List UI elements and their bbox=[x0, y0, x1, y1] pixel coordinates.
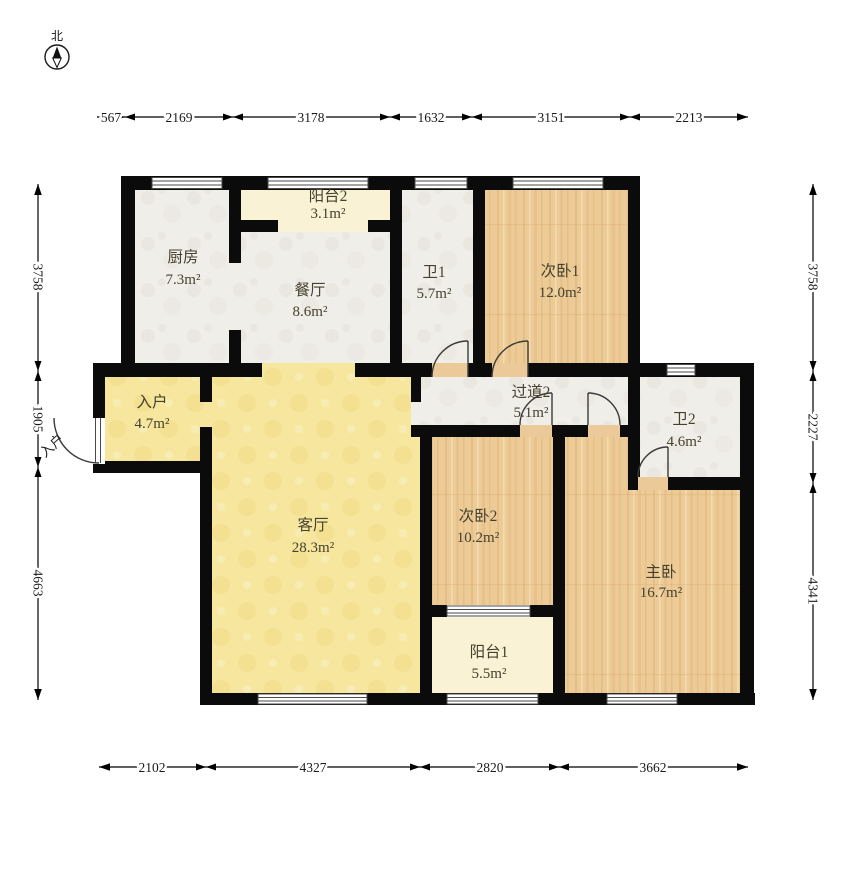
entry-door: 入户 bbox=[36, 418, 105, 464]
passage-entry-living bbox=[200, 402, 212, 427]
dim-top-4: 3151 bbox=[538, 110, 565, 125]
label-kitchen-name: 厨房 bbox=[167, 248, 198, 266]
passage-living-hallway bbox=[411, 402, 432, 425]
compass: 北 bbox=[45, 29, 69, 69]
label-bath2-name: 卫2 bbox=[672, 411, 695, 428]
label-bedroom1-area: 12.0m² bbox=[539, 285, 582, 301]
label-living-area: 28.3m² bbox=[292, 540, 335, 556]
label-entry-name: 入户 bbox=[136, 393, 167, 411]
label-hallway2-name: 过道2 bbox=[512, 383, 551, 401]
window-bedroom1 bbox=[513, 178, 603, 189]
window-balcony1 bbox=[447, 694, 538, 704]
window-bath2 bbox=[667, 365, 695, 376]
label-bath1-area: 5.7m² bbox=[417, 286, 452, 302]
label-master-area: 16.7m² bbox=[640, 585, 683, 601]
dim-bottom-1: 4327 bbox=[300, 760, 327, 775]
dim-top-3: 1632 bbox=[418, 110, 445, 125]
compass-north-label: 北 bbox=[51, 29, 63, 43]
floor-plan-page: 入户 厨房 7.3m² 阳台2 3.1m² 餐厅 8.6m² 卫1 5.7m² … bbox=[0, 0, 845, 886]
dim-bottom-2: 2820 bbox=[477, 760, 504, 775]
dimension-right: 3758 2227 4341 bbox=[805, 184, 820, 700]
dim-top-5: 2213 bbox=[676, 110, 703, 125]
label-kitchen-area: 7.3m² bbox=[166, 272, 201, 288]
dim-top-1: 2169 bbox=[166, 110, 193, 125]
balcony1-slider bbox=[447, 606, 530, 616]
dim-bottom-3: 3662 bbox=[640, 760, 667, 775]
window-bath1 bbox=[415, 178, 467, 189]
window-living bbox=[258, 694, 367, 704]
dim-right-2: 4341 bbox=[805, 578, 820, 605]
dim-bottom-0: 2102 bbox=[139, 760, 166, 775]
label-bedroom2-name: 次卧2 bbox=[459, 507, 498, 525]
label-dining-area: 8.6m² bbox=[293, 304, 328, 320]
passage-kitchen bbox=[229, 263, 241, 330]
dimension-bottom: 2102 4327 2820 3662 bbox=[99, 760, 748, 775]
dim-left-0: 3758 bbox=[30, 264, 45, 291]
dim-left-1: 1905 bbox=[30, 406, 45, 433]
window-balcony2 bbox=[268, 178, 368, 189]
room-living bbox=[212, 377, 420, 693]
label-bath2-area: 4.6m² bbox=[667, 434, 702, 450]
label-master-name: 主卧 bbox=[645, 563, 676, 581]
label-balcony1-name: 阳台1 bbox=[470, 643, 509, 661]
dimension-left: 3758 1905 4663 bbox=[30, 184, 45, 700]
window-kitchen bbox=[152, 178, 222, 189]
dim-top-2: 3178 bbox=[298, 110, 325, 125]
label-bedroom1-name: 次卧1 bbox=[541, 262, 580, 280]
window-master bbox=[607, 694, 677, 704]
dim-left-2: 4663 bbox=[30, 570, 45, 597]
label-bedroom2-area: 10.2m² bbox=[457, 530, 500, 546]
dim-right-0: 3758 bbox=[805, 264, 820, 291]
label-entry-area: 4.7m² bbox=[135, 416, 170, 432]
label-balcony2-area: 3.1m² bbox=[311, 206, 346, 222]
label-bath1-name: 卫1 bbox=[422, 264, 445, 281]
label-living-name: 客厅 bbox=[297, 516, 328, 534]
dim-top-0: 567 bbox=[101, 110, 122, 125]
label-balcony1-area: 5.5m² bbox=[472, 666, 507, 682]
dimension-top: 567 2169 3178 1632 3151 2213 bbox=[97, 110, 748, 125]
label-balcony2-name: 阳台2 bbox=[309, 187, 348, 205]
label-hallway2-area: 5.1m² bbox=[514, 405, 549, 421]
dim-right-1: 2227 bbox=[805, 414, 820, 441]
entry-door-label: 入户 bbox=[36, 430, 67, 460]
passage-dining-living bbox=[262, 363, 355, 377]
label-dining-name: 餐厅 bbox=[294, 281, 325, 299]
floor-plan-svg: 入户 厨房 7.3m² 阳台2 3.1m² 餐厅 8.6m² 卫1 5.7m² … bbox=[0, 0, 845, 886]
